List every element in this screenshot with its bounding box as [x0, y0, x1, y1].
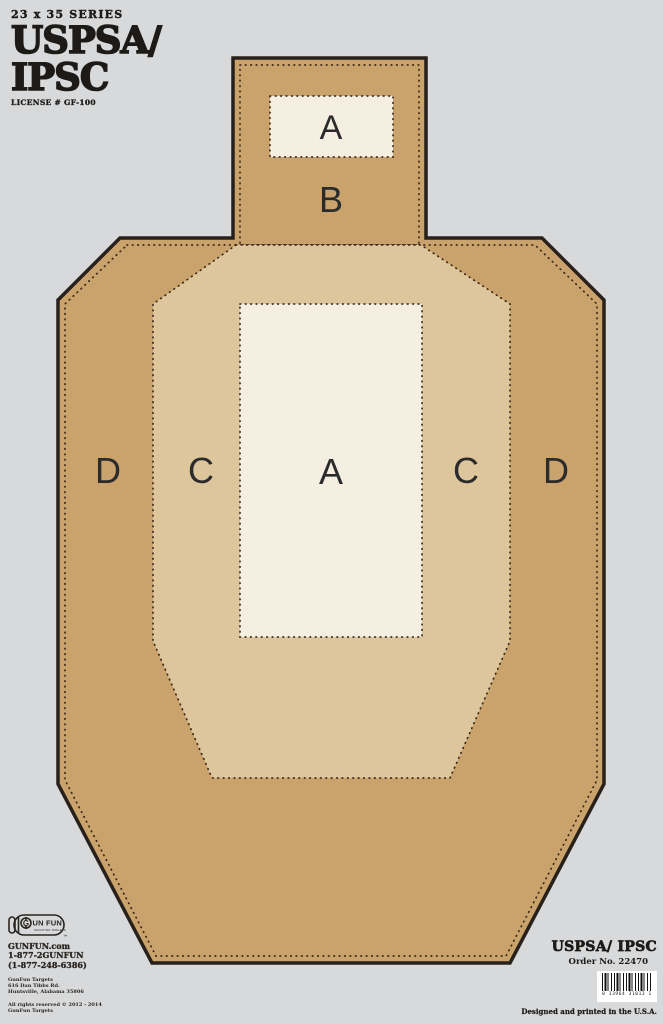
head-b-zone-label: B	[319, 179, 343, 220]
logo-g-letter: G	[23, 918, 29, 927]
logo-trademark: ™	[63, 933, 67, 938]
c-zone-left-label: C	[188, 450, 214, 491]
logo-name: UN FUN	[33, 918, 63, 927]
logo-tagline: SHOOTING TARGETS	[34, 928, 66, 932]
order-number: Order No. 22470	[569, 957, 648, 967]
target-sheet: 23 x 35 SERIES USPSA/ IPSC LICENSE # GF-…	[0, 0, 663, 1024]
c-zone-right-label: C	[453, 450, 479, 491]
d-zone-right-label: D	[543, 450, 569, 491]
footer-title: USPSA/ IPSC	[552, 939, 657, 955]
barcode-bars-icon	[602, 973, 652, 991]
a-zone-label: A	[319, 451, 343, 492]
copyright-line-2: GunFun Targets	[8, 1008, 102, 1014]
printed-note: Designed and printed in the U.S.A.	[521, 1007, 657, 1016]
spacer	[8, 995, 102, 1002]
footer-left-block: G UN FUN SHOOTING TARGETS ™ GUNFUN.com 1…	[8, 913, 102, 1015]
spacer	[8, 970, 102, 977]
gunfun-cartridge-logo: G UN FUN SHOOTING TARGETS ™	[8, 913, 68, 938]
barcode-digits: 0 13964 31013 1	[602, 992, 652, 997]
d-zone-left-label: D	[95, 450, 121, 491]
target-graphic: A B D C A C D	[0, 0, 663, 1024]
footer-right-block: USPSA/ IPSC Order No. 22470 0 13964 3101…	[521, 939, 657, 1016]
phone-number: (1-877-248-6386)	[8, 961, 102, 971]
head-a-zone-label: A	[320, 109, 343, 147]
barcode: 0 13964 31013 1	[597, 971, 657, 1002]
